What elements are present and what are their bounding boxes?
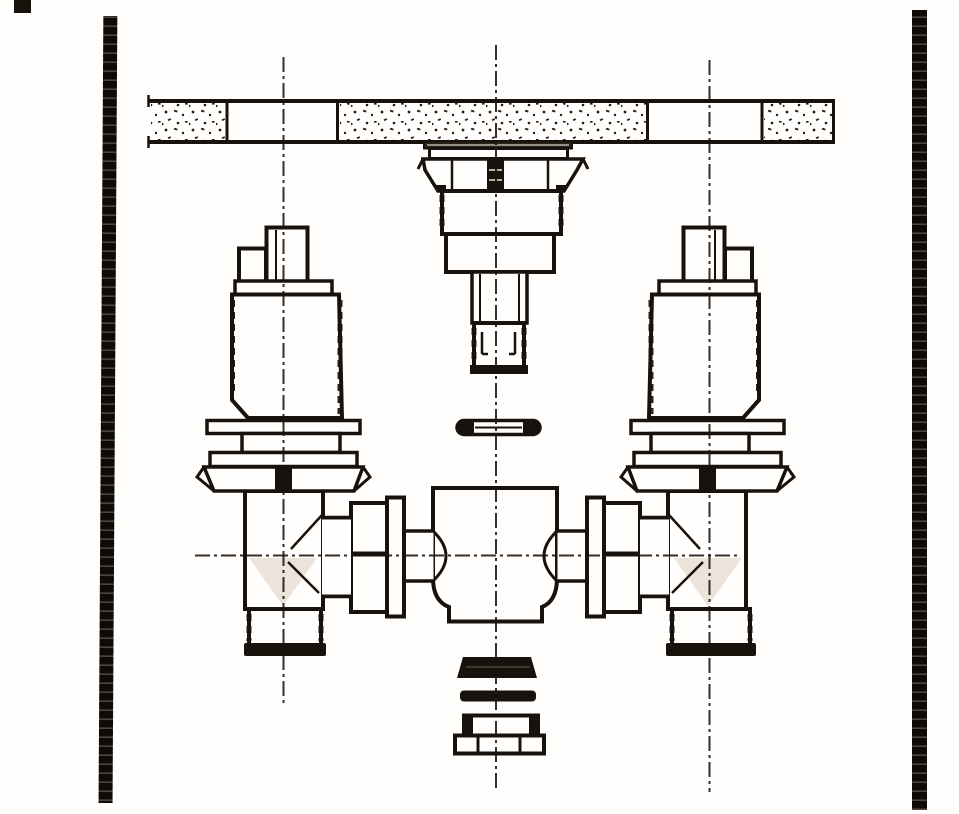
flange-spacer (651, 434, 749, 453)
technical-drawing (0, 0, 959, 814)
valve-body (232, 295, 342, 419)
union-nut-left (351, 503, 387, 612)
deck-stipple-segment (764, 103, 833, 140)
right-valve-assembly (621, 228, 794, 492)
union-nut-right (604, 503, 640, 612)
left-supply-tee (244, 491, 352, 656)
branch-opening (640, 519, 670, 595)
cap-nut-upper (464, 716, 538, 736)
shank-washer-plate (430, 149, 568, 159)
valve-stem-post (267, 228, 308, 282)
deck-stipple-segment (151, 103, 225, 140)
binding-edge-right (912, 10, 927, 810)
right-union-coupling (557, 498, 640, 617)
valve-cap-flange (659, 281, 756, 295)
branch-opening (322, 519, 352, 595)
union-ring-left (387, 498, 404, 617)
locknut-center-flat (699, 467, 716, 491)
flange-spacer (242, 434, 340, 453)
inlet-pipe-end-cap (244, 643, 326, 656)
valve-stem-step (239, 249, 266, 282)
left-union-coupling (351, 498, 434, 617)
valve-stem-post (684, 228, 725, 282)
bottom-seal-stack (455, 657, 544, 754)
union-ring-right (587, 498, 604, 617)
inlet-pipe-end-cap (666, 643, 756, 656)
scan-corner-mark (14, 0, 31, 13)
thin-gasket (460, 691, 536, 702)
binding-edge-left (99, 16, 118, 803)
shank-threaded-collar (442, 191, 561, 234)
shank-gasket (457, 421, 540, 435)
deck-stipple-segment (340, 103, 646, 140)
nipple-end-rim (470, 365, 528, 374)
valve-stem-step (725, 249, 752, 282)
flange-plate-upper (631, 421, 784, 434)
scanned-drawing-page (0, 0, 959, 814)
right-supply-tee (640, 491, 757, 656)
cap-nut-edge-left (464, 716, 473, 736)
inlet-pipe-left (249, 609, 321, 646)
cap-nut-lower (455, 736, 544, 754)
shank-body-block (446, 234, 554, 272)
valve-body (649, 295, 759, 419)
spout-shank-assembly (418, 142, 588, 435)
deck-wall-section (148, 95, 835, 148)
cap-nut-edge-right (529, 716, 538, 736)
flange-plate-lower (634, 453, 781, 467)
inlet-pipe-right (672, 609, 750, 646)
